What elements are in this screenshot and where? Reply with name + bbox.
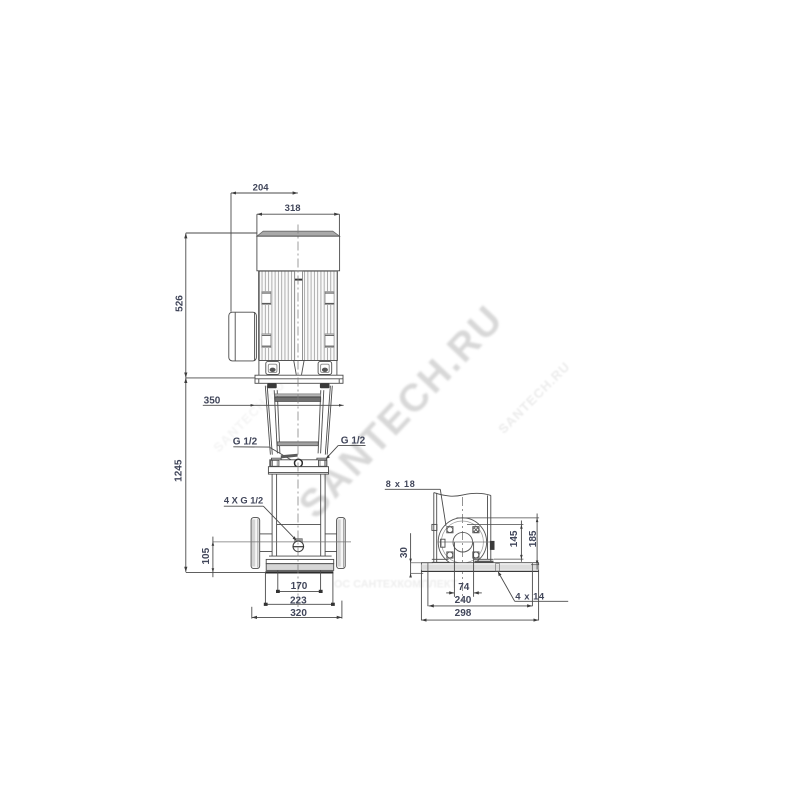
svg-text:318: 318 [285, 203, 301, 214]
svg-text:223: 223 [290, 595, 307, 606]
svg-text:G 1/2: G 1/2 [341, 436, 366, 447]
svg-text:298: 298 [455, 608, 472, 619]
svg-text:526: 526 [174, 295, 185, 312]
svg-text:SANTECH.RU: SANTECH.RU [495, 359, 573, 437]
svg-text:4 X G 1/2: 4 X G 1/2 [224, 495, 263, 505]
svg-text:185: 185 [528, 530, 539, 547]
svg-text:240: 240 [455, 595, 472, 606]
svg-text:105: 105 [201, 547, 212, 564]
svg-text:1245: 1245 [174, 459, 185, 482]
svg-text:ОС САНТЕХКОМПЛЕКТ: ОС САНТЕХКОМПЛЕКТ [334, 579, 458, 591]
svg-text:320: 320 [290, 608, 307, 619]
svg-text:8 x 18: 8 x 18 [386, 479, 416, 489]
svg-text:145: 145 [509, 530, 520, 547]
svg-text:4 x 14: 4 x 14 [515, 591, 545, 602]
svg-text:G 1/2: G 1/2 [233, 437, 258, 448]
svg-text:30: 30 [399, 547, 410, 559]
svg-text:350: 350 [204, 395, 221, 406]
svg-text:74: 74 [458, 582, 470, 593]
svg-text:204: 204 [253, 183, 270, 194]
svg-text:170: 170 [291, 581, 308, 592]
